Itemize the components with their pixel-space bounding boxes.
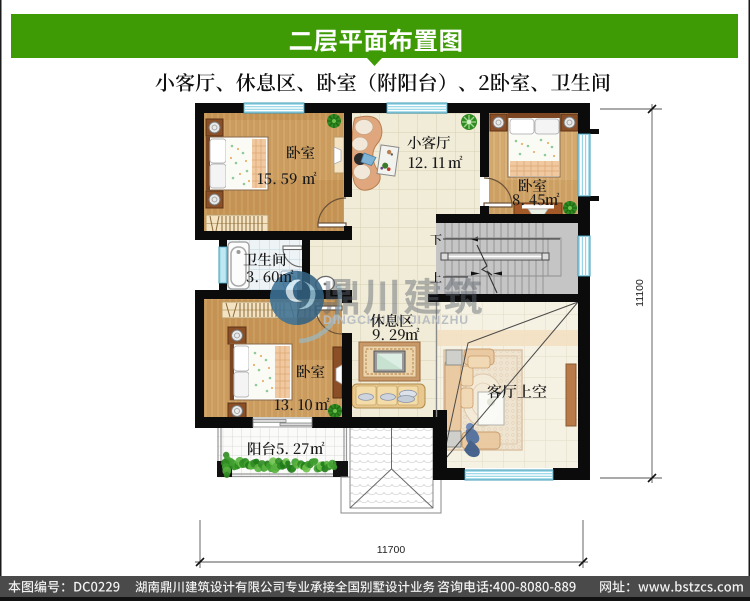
svg-text:11700: 11700 <box>377 544 406 556</box>
svg-text:11100: 11100 <box>634 279 646 307</box>
